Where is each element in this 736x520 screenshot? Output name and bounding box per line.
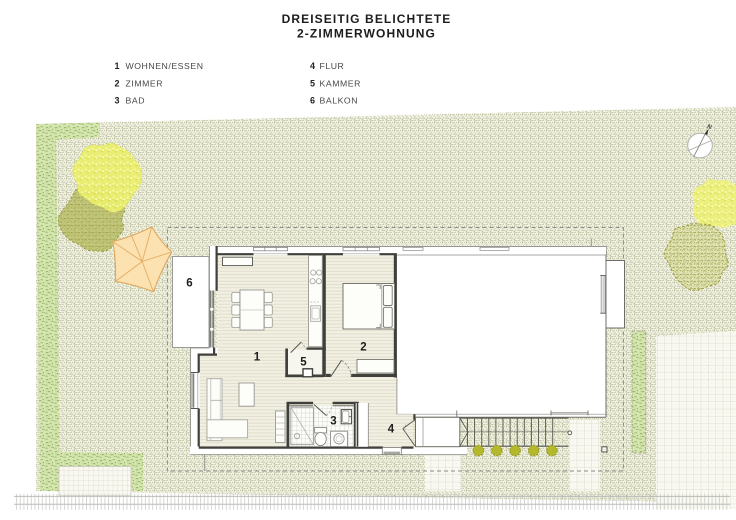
svg-text:BALKON: BALKON	[320, 96, 359, 106]
svg-text:3: 3	[330, 416, 336, 428]
svg-text:FLUR: FLUR	[320, 61, 345, 71]
svg-text:2: 2	[115, 78, 120, 88]
svg-text:WOHNEN/ESSEN: WOHNEN/ESSEN	[126, 61, 204, 71]
svg-text:6: 6	[310, 96, 315, 106]
svg-text:2: 2	[360, 342, 366, 354]
svg-text:4: 4	[310, 61, 315, 71]
svg-text:6: 6	[186, 278, 192, 290]
svg-text:5: 5	[300, 357, 307, 369]
svg-text:ZIMMER: ZIMMER	[126, 78, 164, 88]
svg-text:KAMMER: KAMMER	[320, 78, 361, 88]
svg-text:BAD: BAD	[126, 96, 146, 106]
svg-text:5: 5	[310, 78, 315, 88]
svg-text:2-ZIMMERWOHNUNG: 2-ZIMMERWOHNUNG	[297, 26, 436, 40]
svg-text:DREISEITIG BELICHTETE: DREISEITIG BELICHTETE	[282, 12, 452, 26]
svg-text:3: 3	[115, 96, 120, 106]
svg-text:4: 4	[388, 424, 395, 436]
svg-text:1: 1	[254, 352, 261, 364]
svg-text:1: 1	[115, 61, 120, 71]
